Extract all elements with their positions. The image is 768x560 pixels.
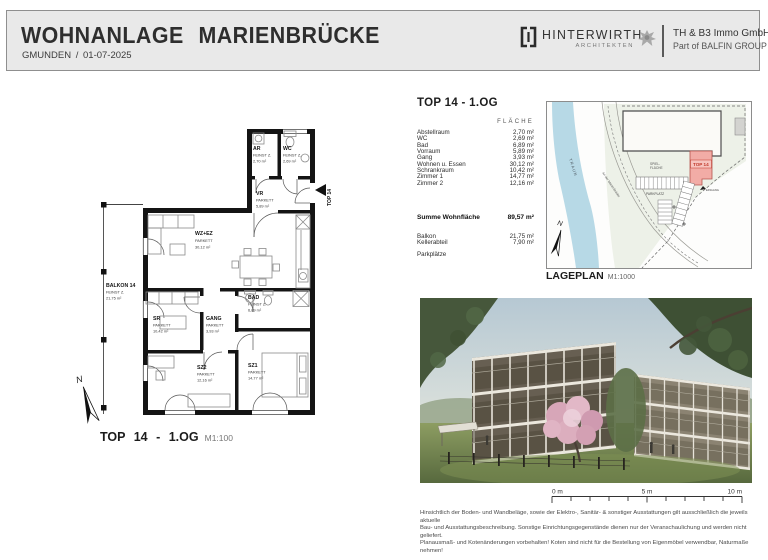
disclaimer: Hinsichtlich der Boden- und Wandbeläge, … [420,510,753,555]
left-building [472,342,616,464]
title-band: WOHNANLAGE MARIENBRÜCKE GMUNDEN / 01-07-… [6,10,760,71]
walls [143,129,315,415]
room-wzez: WZ+EZ [195,231,214,237]
site-plan-scale: M1:1000 [608,274,635,281]
room-sz2-finish: PARKETT [197,372,215,377]
site-unit-label: TOP 14 [693,162,709,167]
middle-tree [606,368,646,452]
room-wc-area: 2,69 m² [283,159,297,164]
balcony-outline [104,205,144,415]
hinterwirth-logo-icon [519,25,538,49]
company-block: TH & B3 Immo GmbH Part of BALFIN GROUP [673,28,768,51]
entry-marker: TOP 14 [315,184,333,206]
room-bad-area: 6,89 m² [248,308,262,313]
room-gang-area: 3,93 m² [206,329,220,334]
austria-eagle-emblem-icon [637,26,657,50]
table-row: Kellerabteil7,90 m² [417,240,534,246]
plan-sheet: WOHNANLAGE MARIENBRÜCKE GMUNDEN / 01-07-… [0,0,768,560]
architect-name: HINTERWIRTH [542,27,629,42]
area-column-header: FLÄCHE [417,119,534,125]
room-sz1-area: 14,77 m² [248,376,264,381]
unit-heading: TOP 14 - 1.OG [417,97,498,109]
header-divider [662,25,664,57]
room-sz2: SZ2 [197,365,207,371]
north-arrow: N [74,373,99,424]
room-sr-finish: PARKETT [153,323,171,328]
room-bad: BAD [248,295,259,301]
site-plan-caption: LAGEPLANM1:1000 [546,270,635,282]
room-wc: WC [283,146,292,152]
room-vr: VR [256,191,263,197]
openings [143,129,317,417]
sum-row: Summe Wohnfläche89,57 m² [417,214,534,221]
parking-row [636,177,688,189]
table-row: Zimmer 212,16 m² [417,181,534,187]
architect-block: HINTERWIRTH ARCHITEKTEN [542,27,634,49]
floor-plan-caption: TOP 14 - 1.OGM1:100 [100,430,233,444]
scale-five: 5 m [642,489,653,496]
floor-plan-caption-text: TOP 14 - 1.OG [100,430,199,444]
room-balkon-area: 21,75 m² [106,296,122,301]
building-rendering-image [420,298,752,483]
room-sz2-area: 12,16 m² [197,378,213,383]
room-wc-finish: FEINST Z. [283,153,301,158]
building-outline [623,111,721,156]
site-plan-drawing: TRAUN An der Marienbrücke TOP 14 EINGANG… [546,101,752,269]
room-vr-finish: PARKETT [256,198,274,203]
room-sz1-finish: PARKETT [248,370,266,375]
room-gang: GANG [206,316,222,322]
area-table: Abstellraum2,70 m² WC2,69 m² Bad6,89 m² … [417,130,534,258]
company-group: Part of BALFIN GROUP [673,41,768,51]
disclaimer-line: Planausmaß- und Kotenänderungen vorbehal… [420,540,753,555]
north-label: N [75,374,84,386]
room-balkon: BALKON 14 [106,283,136,289]
room-ar: AR [253,146,261,152]
disclaimer-line: Bau- und Ausstattungsbeschreibung. Sonst… [420,525,753,540]
floor-plan-scale: M1:100 [205,433,233,443]
scale-bar: 0 m 5 m 10 m [550,486,754,506]
project-subtitle: GMUNDEN / 01-07-2025 [22,50,132,61]
room-wzez-area: 30,12 m² [195,245,211,250]
room-sz1: SZ1 [248,363,258,369]
architect-sub: ARCHITEKTEN [542,43,634,49]
furniture [146,131,310,407]
annex-block [735,118,745,135]
room-balkon-finish: FEINST Z. [106,290,124,295]
disclaimer-line: Hinsichtlich der Boden- und Wandbeläge, … [420,510,753,525]
table-row: Parkplätze [417,252,534,258]
parking-label: PARKPLATZ [646,192,664,196]
entry-label: TOP 14 [327,189,333,206]
room-ar-finish: FEINST Z. [253,153,271,158]
room-bad-finish: FEINST Z. [248,302,266,307]
entrance-label: EINGANG [706,188,719,192]
room-vr-area: 5,89 m² [256,204,270,209]
room-sr: SR [153,316,160,322]
floor-plan-drawing: TOP 14 N AR FEINST Z. 2,70 m² WC FEINST … [50,98,340,460]
scale-zero: 0 m [552,489,563,496]
stairs [658,200,672,224]
room-ar-area: 2,70 m² [253,159,267,164]
room-sr-area: 10,42 m² [153,329,169,334]
site-plan-caption-text: LAGEPLAN [546,270,604,282]
company-name: TH & B3 Immo GmbH [673,28,768,39]
project-title: WOHNANLAGE MARIENBRÜCKE [21,22,380,49]
room-wzez-finish: PARKETT [195,238,213,243]
room-gang-finish: PARKETT [206,323,224,328]
scale-ten: 10 m [728,489,742,496]
